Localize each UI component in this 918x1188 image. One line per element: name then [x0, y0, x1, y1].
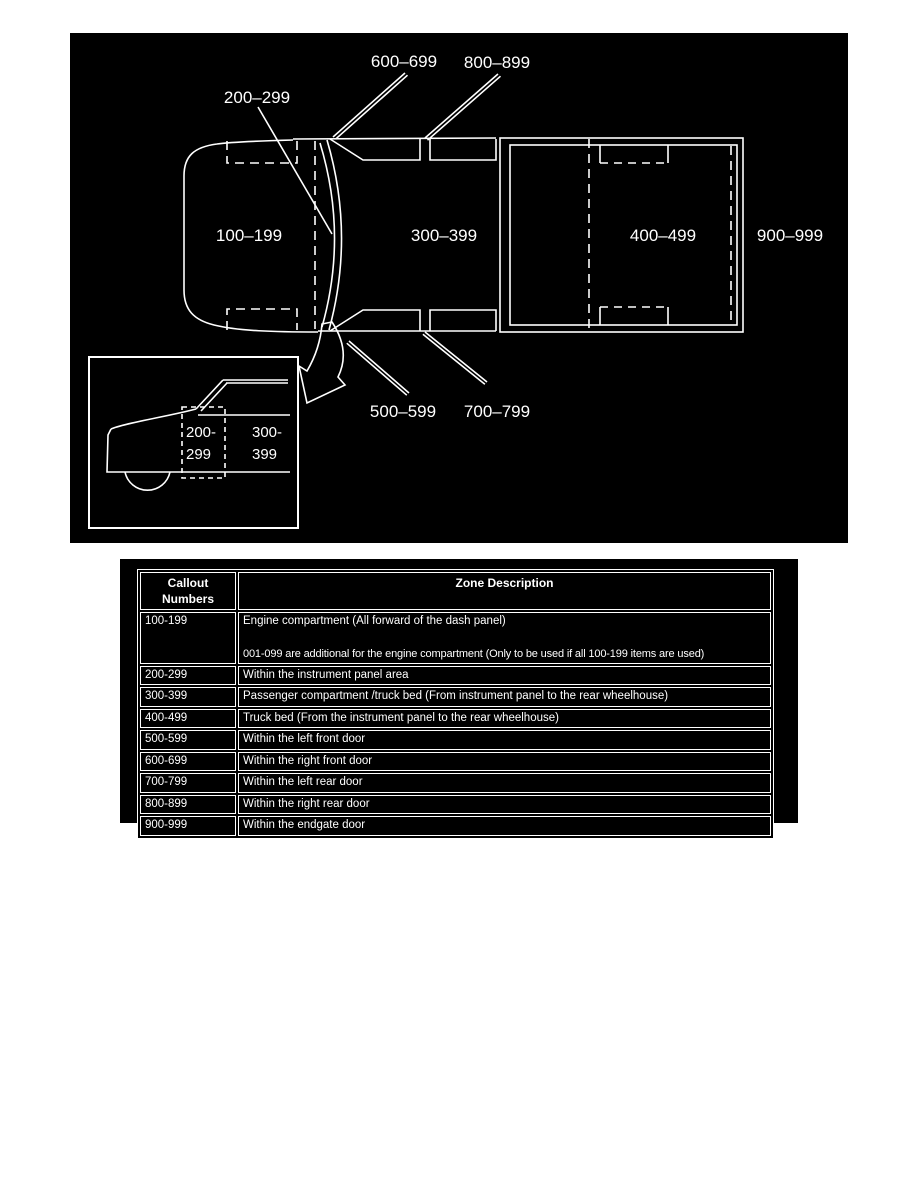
table-row: 700-799 Within the left rear door: [140, 773, 771, 793]
zone-diagram-panel: 600–699 800–899 200–299 100–199 300–399 …: [70, 33, 848, 543]
description-line-2: 001-099 are additional for the engine co…: [243, 647, 766, 662]
callout-cell: 600-699: [140, 752, 236, 772]
left-rear-door: [430, 310, 496, 331]
table-row: 500-599 Within the left front door: [140, 730, 771, 750]
callout-cell: 700-799: [140, 773, 236, 793]
callout-cell: 800-899: [140, 795, 236, 815]
description-cell: Within the left front door: [238, 730, 771, 750]
zone-label-100-199: 100–199: [216, 226, 282, 245]
table-row: 600-699 Within the right front door: [140, 752, 771, 772]
left-front-door: [330, 310, 420, 331]
description-cell: Passenger compartment /truck bed (From i…: [238, 687, 771, 707]
right-rear-door: [430, 139, 496, 160]
callout-cell: 900-999: [140, 816, 236, 836]
zone-label-700-799: 700–799: [464, 402, 530, 421]
zone-label-800-899: 800–899: [464, 53, 530, 72]
header-zone-description: Zone Description: [238, 572, 771, 610]
truck-top-view-bed: [500, 138, 743, 332]
hood-dashed-zone-top: [227, 141, 297, 163]
zone-label-300-399: 300–399: [411, 226, 477, 245]
truck-top-view-cowl: [315, 140, 342, 330]
manual-page: { "colors": { "page_background": "#fffff…: [0, 0, 918, 1188]
leader-500-599: [347, 341, 409, 395]
inset-roof-line: [223, 380, 288, 383]
leader-800-899: [425, 74, 501, 140]
zone-label-400-499: 400–499: [630, 226, 696, 245]
zone-label-500-599: 500–599: [370, 402, 436, 421]
zone-label-600-699: 600–699: [371, 52, 437, 71]
description-cell: Within the right rear door: [238, 795, 771, 815]
leader-700-799: [423, 332, 487, 384]
table-row: 100-199 Engine compartment (All forward …: [140, 612, 771, 663]
description-spacer: [243, 630, 766, 647]
table-row: 800-899 Within the right rear door: [140, 795, 771, 815]
table-row: 200-299 Within the instrument panel area: [140, 666, 771, 686]
inset-dashed-zone: [182, 407, 225, 478]
inset-side-view: [89, 357, 298, 528]
description-cell: Within the right front door: [238, 752, 771, 772]
description-cell: Within the left rear door: [238, 773, 771, 793]
callout-cell: 300-399: [140, 687, 236, 707]
description-cell: Within the endgate door: [238, 816, 771, 836]
inset-front-wheel: [125, 472, 170, 490]
leader-200-299: [258, 107, 332, 234]
inset-label-300: 300-: [252, 424, 282, 441]
inset-hood-line: [111, 409, 196, 429]
zone-description-table: Callout Numbers Zone Description 100-199…: [137, 569, 774, 839]
description-cell: Within the instrument panel area: [238, 666, 771, 686]
table-row: 300-399 Passenger compartment /truck bed…: [140, 687, 771, 707]
table-row: 900-999 Within the endgate door: [140, 816, 771, 836]
header-callout-numbers: Callout Numbers: [140, 572, 236, 610]
inset-label-200: 200-: [186, 424, 216, 441]
table-row: 400-499 Truck bed (From the instrument p…: [140, 709, 771, 729]
right-front-door: [330, 139, 420, 160]
truck-zone-diagram: 600–699 800–899 200–299 100–199 300–399 …: [70, 33, 848, 543]
callout-cell: 100-199: [140, 612, 236, 663]
top-rail-line: [293, 138, 496, 139]
callout-cell: 400-499: [140, 709, 236, 729]
inset-label-399: 399: [252, 446, 277, 463]
zone-label-900-999: 900–999: [757, 226, 823, 245]
description-cell: Engine compartment (All forward of the d…: [238, 612, 771, 663]
table-header-row: Callout Numbers Zone Description: [140, 572, 771, 610]
hood-dashed-zone-bottom: [227, 309, 297, 330]
inset-pointer-arrow-icon: [299, 322, 345, 403]
zone-label-200-299: 200–299: [224, 88, 290, 107]
inset-label-299: 299: [186, 446, 211, 463]
description-line-1: Engine compartment (All forward of the d…: [243, 614, 766, 630]
leader-600-699: [333, 73, 408, 139]
zone-table-panel: Callout Numbers Zone Description 100-199…: [120, 559, 798, 823]
callout-cell: 200-299: [140, 666, 236, 686]
description-cell: Truck bed (From the instrument panel to …: [238, 709, 771, 729]
callout-cell: 500-599: [140, 730, 236, 750]
